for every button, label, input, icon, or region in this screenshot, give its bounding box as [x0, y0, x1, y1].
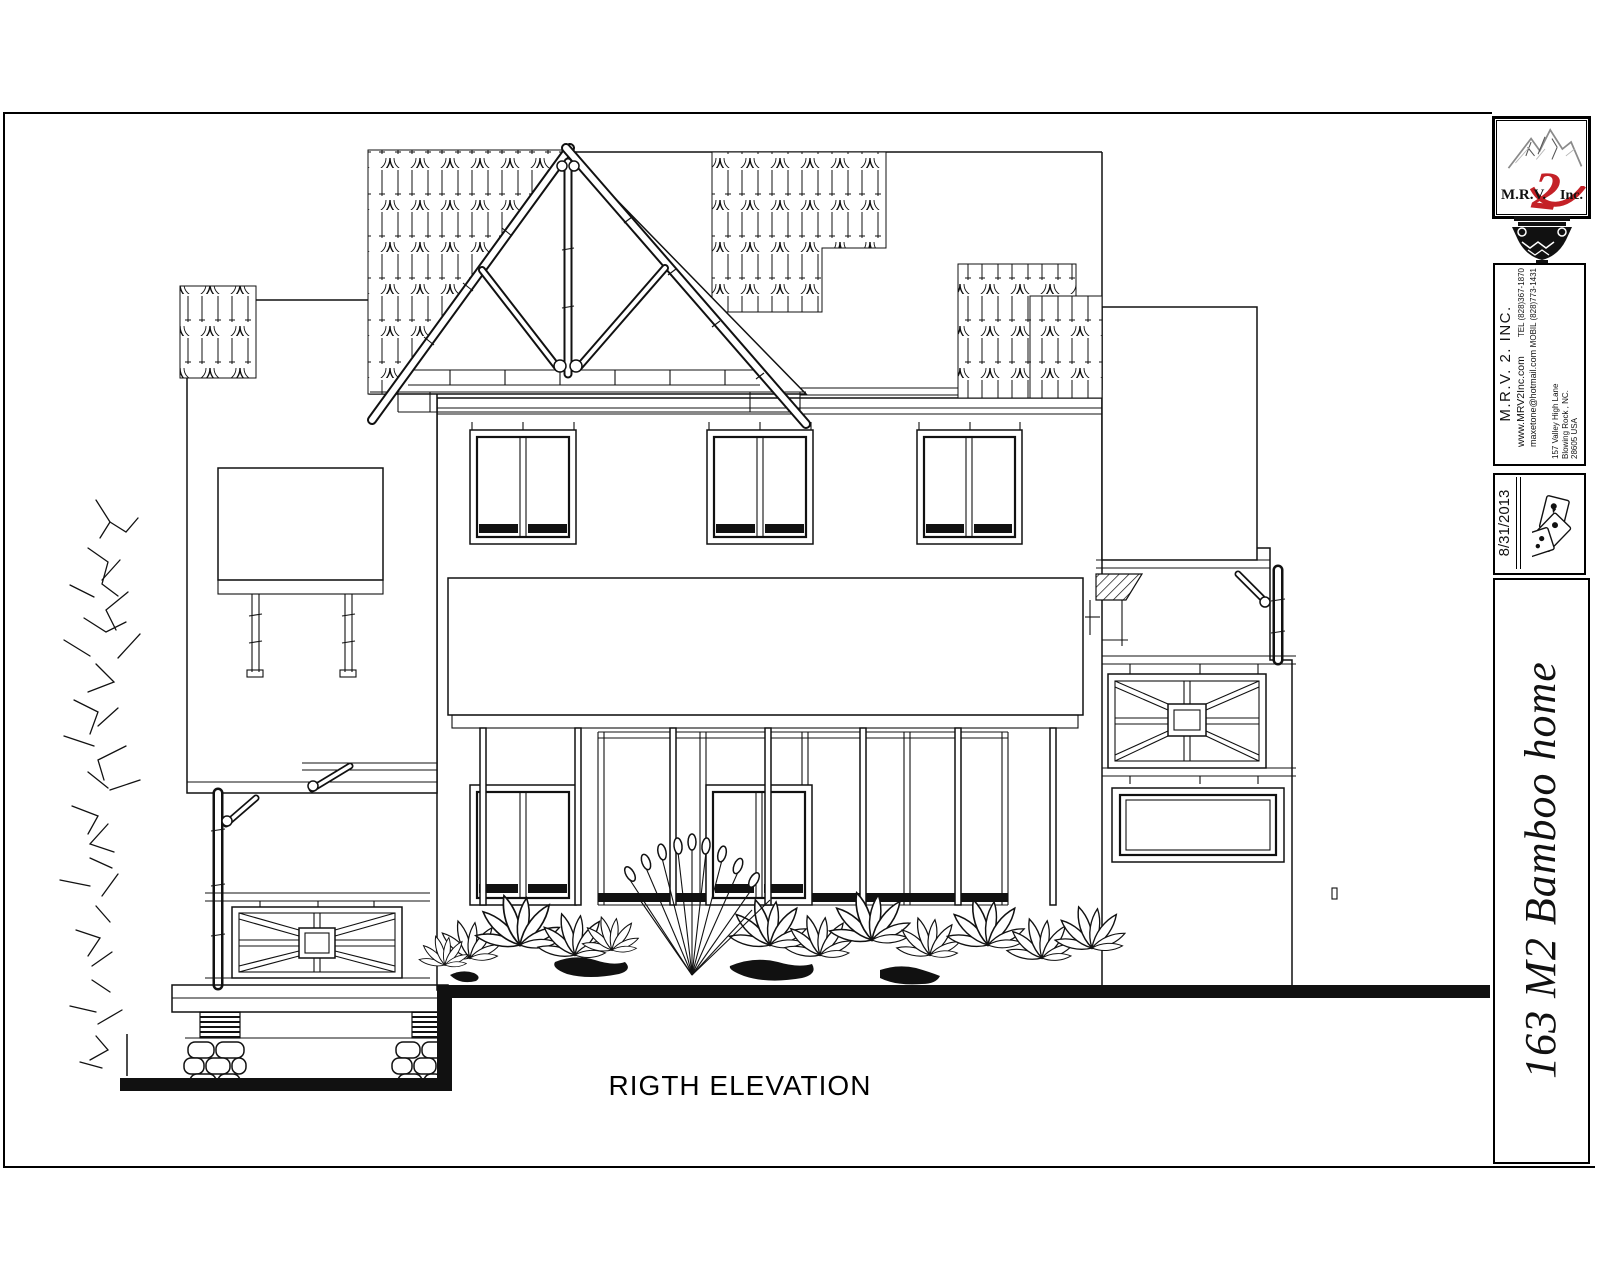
company-address-line1: 157 Valley High Lane [1551, 268, 1561, 459]
logo-box: M.R.V. 2 Inc. [1492, 116, 1591, 219]
right-wing-upper [1102, 307, 1257, 560]
roof-tile-patch [712, 152, 886, 312]
company-name: M.R.V. 2. INC. [1497, 268, 1514, 459]
company-website: www.MRV2Inc.com [1515, 356, 1527, 447]
company-tel: TEL (828)367-1870 [1517, 268, 1526, 337]
window [706, 785, 812, 905]
wing-tile-patch [180, 286, 256, 378]
drawing-date: 8/31/2013 [1496, 477, 1513, 569]
right-porch [1085, 548, 1337, 988]
project-title: 163 M2 Bamboo home [1515, 661, 1566, 1079]
project-title-box: 163 M2 Bamboo home [1493, 578, 1590, 1164]
company-info-box: M.R.V. 2. INC. www.MRV2Inc.com TEL (828)… [1493, 263, 1586, 466]
x-brace-railing [205, 893, 430, 985]
drawing-title-label: RIGTH ELEVATION [558, 1070, 922, 1102]
logo-frame: M.R.V. 2 Inc. [1496, 120, 1587, 215]
logo-text-suffix: Inc. [1560, 188, 1583, 204]
company-address-line2: Blowing Rock , NC. [1561, 268, 1571, 459]
wide-window [1112, 788, 1284, 862]
roof-tile-patch [1030, 296, 1102, 398]
playing-cards-icon [1532, 490, 1576, 558]
logo-text-prefix: M.R.V. [1501, 187, 1546, 204]
blueprint-page: RIGTH ELEVATION M.R.V. 2 Inc. [0, 0, 1600, 1280]
column-capital-icon [1506, 216, 1578, 264]
balcony-band [448, 578, 1083, 728]
tree-sketch [60, 500, 140, 1068]
company-address-line3: 28605 USA [1570, 268, 1580, 459]
divider [1520, 477, 1521, 569]
company-mobil: MOBIL (828)773-1431 [1529, 268, 1538, 347]
deck [172, 985, 448, 1038]
divider [1516, 477, 1517, 569]
left-porch [172, 793, 450, 1088]
company-email: maxetone@hotmail.com [1528, 350, 1538, 447]
x-brace-railing [1102, 656, 1296, 784]
